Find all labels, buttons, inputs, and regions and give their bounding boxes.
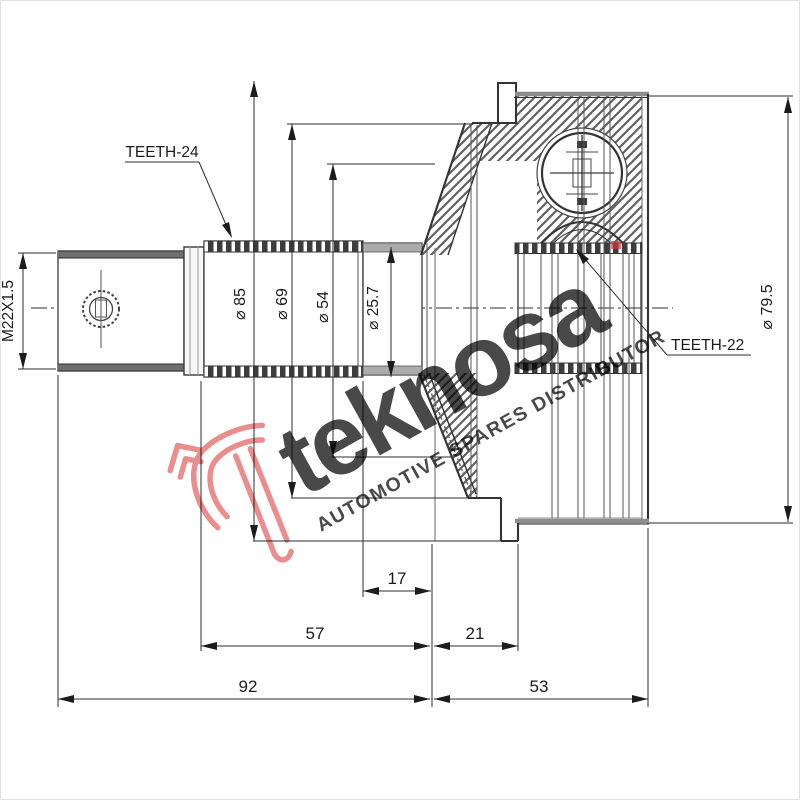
top-lug <box>498 83 516 123</box>
cv-joint-technical-drawing: M22X1.5 ⌀ 85 ⌀ 69 ⌀ 54 <box>1 1 800 800</box>
dia69-label: ⌀ 69 <box>274 288 291 320</box>
len53-label: 53 <box>530 677 549 696</box>
dim-92: 92 <box>58 677 430 703</box>
dim-17: 17 <box>363 569 431 595</box>
dia25-7-label: ⌀ 25.7 <box>365 286 382 330</box>
dim-53: 53 <box>434 677 648 703</box>
len17-label: 17 <box>388 569 407 588</box>
dim-57: 57 <box>201 624 430 650</box>
dim-thread: M22X1.5 <box>1 253 56 369</box>
dia79-5-label: ⌀ 79.5 <box>759 284 776 329</box>
teeth22-label: TEETH-22 <box>671 337 744 354</box>
shaft-collar <box>184 247 204 375</box>
dim-d79-5: ⌀ 79.5 <box>649 96 793 523</box>
stub-shaft <box>58 251 184 371</box>
dia54-label: ⌀ 54 <box>315 291 332 323</box>
dim-21: 21 <box>434 624 518 650</box>
len57-label: 57 <box>306 624 325 643</box>
teeth24-label: TEETH-24 <box>125 144 199 161</box>
cv-joint-drawing-page: M22X1.5 ⌀ 85 ⌀ 69 ⌀ 54 <box>0 0 800 800</box>
dia85-label: ⌀ 85 <box>232 288 249 320</box>
leader-teeth-24: TEETH-24 <box>125 144 232 238</box>
len21-label: 21 <box>466 624 485 643</box>
thread-label: M22X1.5 <box>1 280 17 342</box>
len92-label: 92 <box>239 677 258 696</box>
red-mark <box>611 241 621 249</box>
